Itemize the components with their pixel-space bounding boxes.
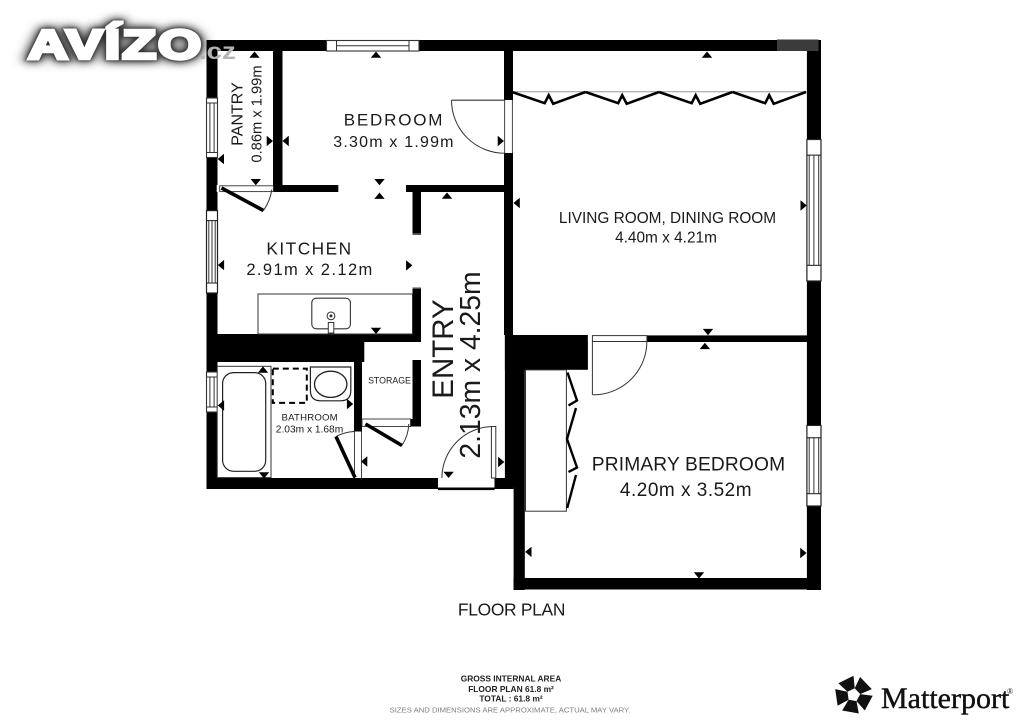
svg-text:FLOOR PLAN: FLOOR PLAN: [458, 600, 565, 620]
svg-text:4.20m x 3.52m: 4.20m x 3.52m: [620, 480, 752, 501]
svg-text:SIZES AND DIMENSIONS ARE APPRO: SIZES AND DIMENSIONS ARE APPROXIMATE, AC…: [390, 706, 631, 715]
svg-text:PRIMARY BEDROOM: PRIMARY BEDROOM: [592, 455, 785, 476]
svg-text:BEDROOM: BEDROOM: [344, 111, 444, 130]
svg-text:2.91m x 2.12m: 2.91m x 2.12m: [246, 261, 373, 279]
svg-text:0.86m x 1.99m: 0.86m x 1.99m: [250, 65, 266, 162]
svg-text:AVÍZO: AVÍZO: [28, 22, 203, 67]
svg-text:.cz: .cz: [199, 39, 236, 64]
svg-text:2.13m x 4.25m: 2.13m x 4.25m: [454, 271, 486, 458]
svg-text:BATHROOM: BATHROOM: [282, 413, 338, 424]
svg-text:STORAGE: STORAGE: [368, 376, 411, 386]
svg-text:4.40m x 4.21m: 4.40m x 4.21m: [615, 230, 717, 247]
svg-text:GROSS INTERNAL AREA: GROSS INTERNAL AREA: [461, 674, 562, 684]
svg-text:TOTAL : 61.8 m²: TOTAL : 61.8 m²: [479, 694, 543, 704]
svg-text:®: ®: [1007, 687, 1013, 696]
svg-text:LIVING ROOM, DINING ROOM: LIVING ROOM, DINING ROOM: [559, 210, 776, 227]
svg-text:FLOOR PLAN 61.8 m²: FLOOR PLAN 61.8 m²: [468, 684, 554, 694]
svg-text:2.03m x 1.68m: 2.03m x 1.68m: [276, 425, 343, 436]
svg-text:PANTRY: PANTRY: [230, 82, 247, 146]
svg-text:Matterport: Matterport: [881, 682, 1010, 715]
svg-text:KITCHEN: KITCHEN: [266, 239, 352, 259]
svg-text:3.30m x 1.99m: 3.30m x 1.99m: [333, 134, 454, 151]
